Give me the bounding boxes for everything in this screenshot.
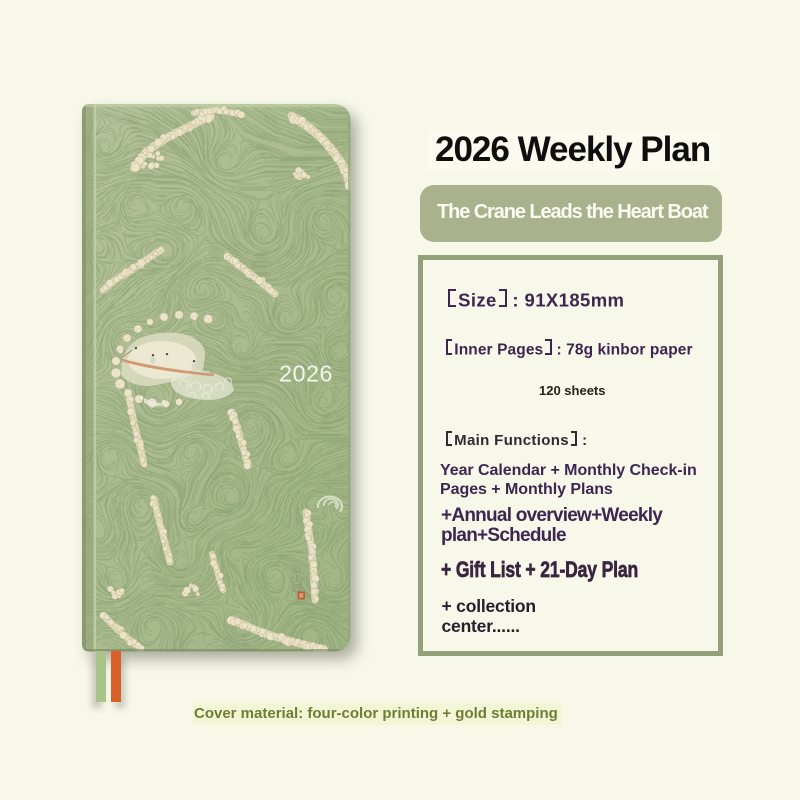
svg-text:2026: 2026 <box>279 361 333 387</box>
